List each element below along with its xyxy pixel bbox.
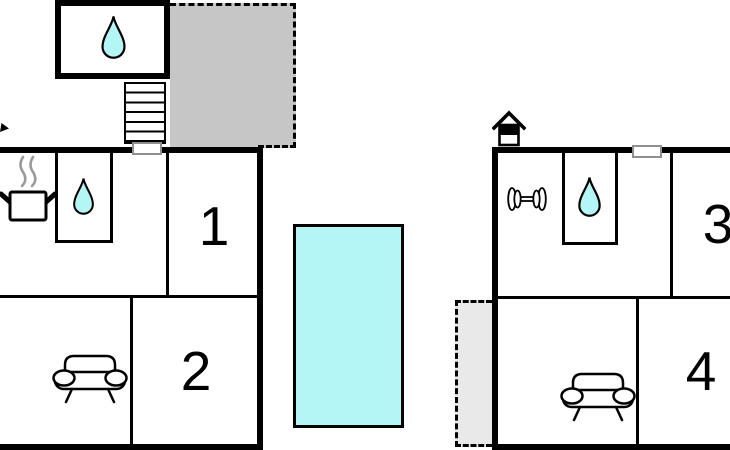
room-label-4: 4 <box>679 344 723 399</box>
room-label-2: 2 <box>174 344 218 399</box>
room2-divider-wall <box>130 298 133 444</box>
arrow-fragment-icon <box>0 122 10 134</box>
water-drop-icon <box>577 174 602 220</box>
entrance-house-icon <box>492 109 526 147</box>
stairs-icon <box>124 82 166 144</box>
dumbbell-icon <box>507 186 547 212</box>
cooking-pot-icon <box>0 153 56 223</box>
room-label-1: 1 <box>192 199 236 254</box>
sofa-icon <box>52 351 128 405</box>
swimming-pool <box>293 224 404 428</box>
room3-left-wall <box>670 153 673 296</box>
terrace-dashed-edge <box>258 145 296 148</box>
room1-left-wall <box>166 153 169 295</box>
left-building-right-wall <box>257 147 263 450</box>
window-left-building <box>132 142 162 155</box>
right-building-bottom-wall <box>492 444 730 450</box>
terrace <box>170 3 296 148</box>
patio <box>455 300 492 447</box>
room4-left-wall <box>636 299 639 444</box>
sofa-icon <box>560 369 636 423</box>
room-label-3: 3 <box>696 197 730 252</box>
water-drop-icon <box>72 174 95 219</box>
window-right-building <box>632 145 662 158</box>
right-building-floor-divider <box>492 296 730 299</box>
water-drop-icon <box>100 13 127 62</box>
left-building-bottom-wall <box>0 444 263 450</box>
floor-plan: 1 2 3 4 <box>0 0 730 450</box>
